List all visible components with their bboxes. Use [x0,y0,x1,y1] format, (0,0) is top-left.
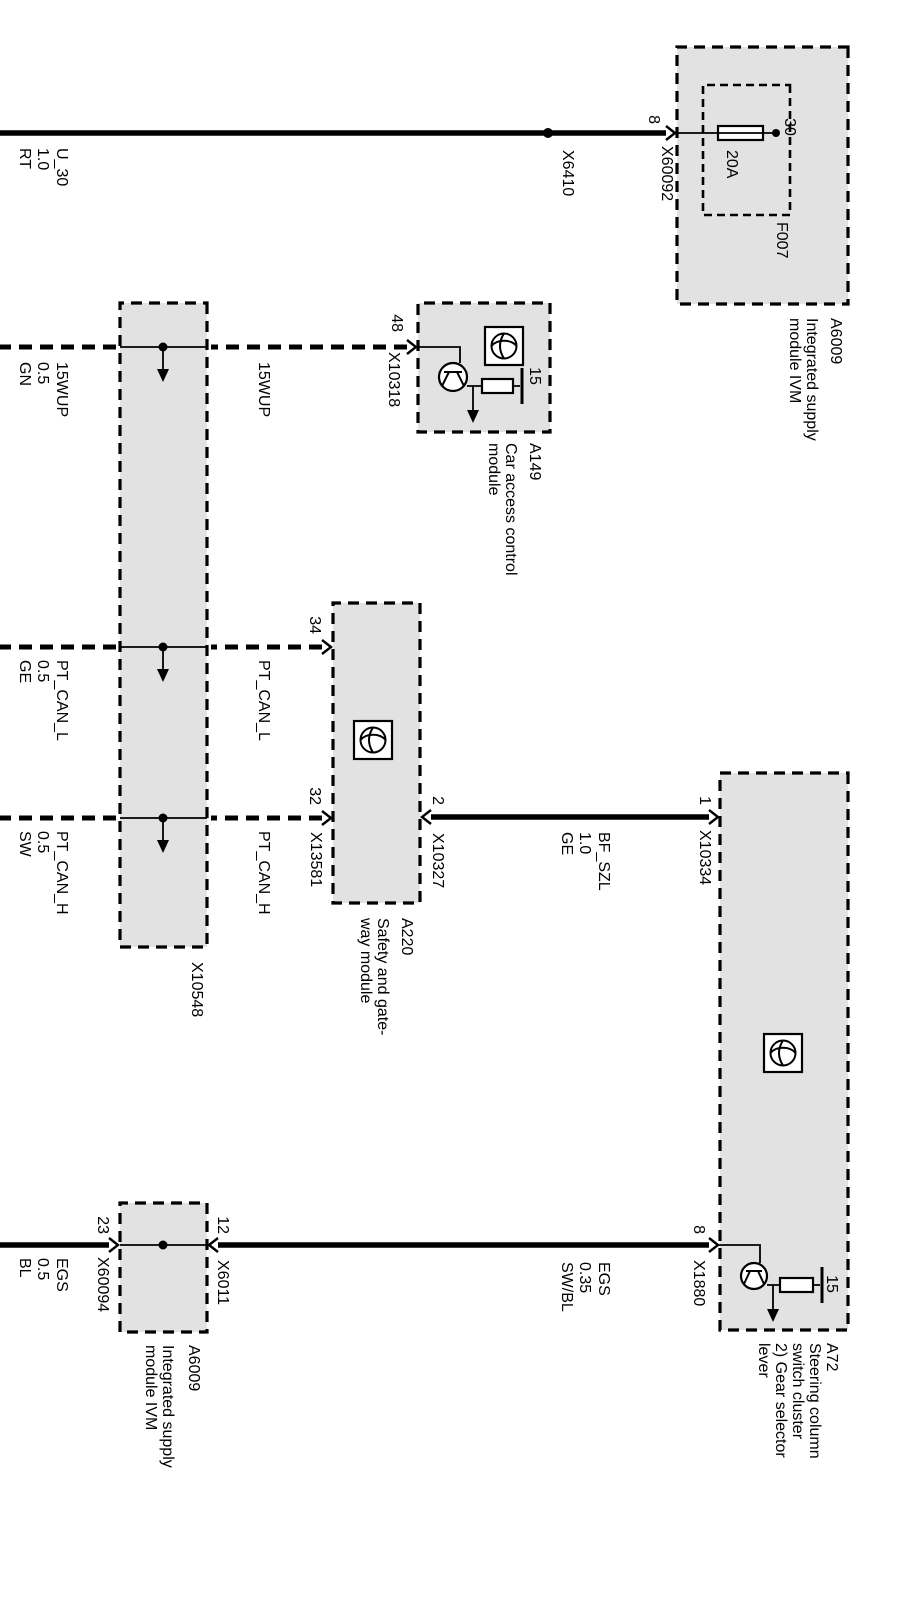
wire-name: EGS [595,1262,612,1296]
wire-color: SW/BL [558,1262,575,1312]
wire-size: 0.5 [34,660,51,682]
pin-number: 8 [645,115,662,124]
module-name-line: 2) Gear selector [772,1343,789,1458]
wire-size: 1.0 [34,148,51,170]
wire-color: GE [558,832,575,855]
wire-size: 0.5 [34,1258,51,1280]
resistor-icon [482,379,513,393]
fuse-terminal-label: 30 [781,118,798,136]
wire-color: GN [16,362,33,386]
pin-number: 48 [388,314,405,332]
module-name-line: Safety and gate- [374,918,391,1035]
pin-fork-icon-x10334 [709,810,718,824]
transistor-icon [439,363,467,391]
module-name-line: module [485,443,502,496]
pin-fork-icon-x60094 [109,1238,118,1252]
connector-label: X13581 [307,832,324,887]
wire-name: PT_CAN_H [53,831,70,915]
splice-dot-x6410 [543,128,553,138]
wire-size: 0.35 [576,1262,593,1293]
pin-number: 2 [429,796,446,805]
pin-fork-icon-x10327 [422,810,431,824]
module-id-ivm-top: A6009 [827,318,844,364]
wire-color: GE [16,660,33,683]
wire-size: 0.5 [34,362,51,384]
transistor-icon [741,1263,767,1289]
wire-size: 1.0 [576,832,593,854]
wire-mid-label: PT_CAN_H [255,831,272,915]
module-id-a72: A72 [823,1343,840,1372]
resistor-icon [780,1278,813,1292]
wire-name: PT_CAN_L [53,660,70,741]
module-name-line: Car access control [502,443,519,576]
connector-label: X1880 [690,1260,707,1306]
module-id-a220: A220 [398,918,415,955]
pin-fork-icon-x10318 [407,340,416,354]
connector-label: X10334 [696,830,713,885]
splice-box-label: X10548 [188,962,205,1017]
pin-number: 12 [214,1216,231,1234]
pin-number: 8 [690,1225,707,1234]
pin-number: 1 [696,796,713,805]
connector-label: X60094 [94,1257,111,1312]
wire-color: SW [16,831,33,858]
module-box-ivm-bottom [120,1203,207,1332]
wire-mid-label: 15WUP [255,362,272,417]
connector-label: X10327 [429,833,446,888]
module-name-line: way module [357,917,374,1003]
wire-name: 15WUP [53,362,70,417]
connector-label: X6011 [214,1260,231,1305]
module-name-line: module IVM [142,1345,159,1430]
schematic: A6009 Integrated supply module IVM 30 20… [0,0,923,1599]
wire-color: RT [16,148,33,169]
pin-fork-icon-x60092 [666,126,675,140]
pin-number: 34 [306,616,323,634]
fuse-id-label: F007 [773,222,790,259]
connector-label: X10318 [385,352,402,407]
terminal-label: 15 [823,1275,840,1293]
pin-number: 32 [306,787,323,805]
wiring-diagram-page: A6009 Integrated supply module IVM 30 20… [0,0,923,1599]
pin-fork-icon-a220-34 [322,640,331,654]
connector-label-x6410: X6410 [559,150,576,196]
terminal-label: 15 [526,367,543,385]
module-name-line: Integrated supply [159,1345,176,1468]
module-name-line: lever [755,1343,772,1378]
module-name-line: Integrated supply [803,318,820,441]
wire-name: U_30 [53,148,70,186]
terminal-30-dot [772,129,780,137]
module-id-a149: A149 [526,443,543,480]
module-name-line: switch cluster [789,1343,806,1440]
wire-size: 0.5 [34,831,51,853]
junction-dot-ivm-bottom [159,1241,168,1250]
fuse-rating-label: 20A [723,150,740,179]
wire-color: BL [16,1258,33,1278]
pin-number: 23 [94,1216,111,1234]
wire-name: EGS [53,1258,70,1292]
pin-fork-icon-x1880 [709,1238,718,1252]
pin-fork-icon-x6011 [209,1238,218,1252]
wire-mid-label: PT_CAN_L [255,660,272,741]
pin-fork-icon-a220-32 [322,811,331,825]
module-name-line: Steering column [806,1343,823,1459]
wire-name: BF_SZL [595,832,612,891]
module-id-ivm-bottom: A6009 [185,1345,202,1391]
diagram-canvas: A6009 Integrated supply module IVM 30 20… [0,0,923,1599]
connector-label: X60092 [658,146,675,201]
module-name-line: module IVM [786,318,803,403]
